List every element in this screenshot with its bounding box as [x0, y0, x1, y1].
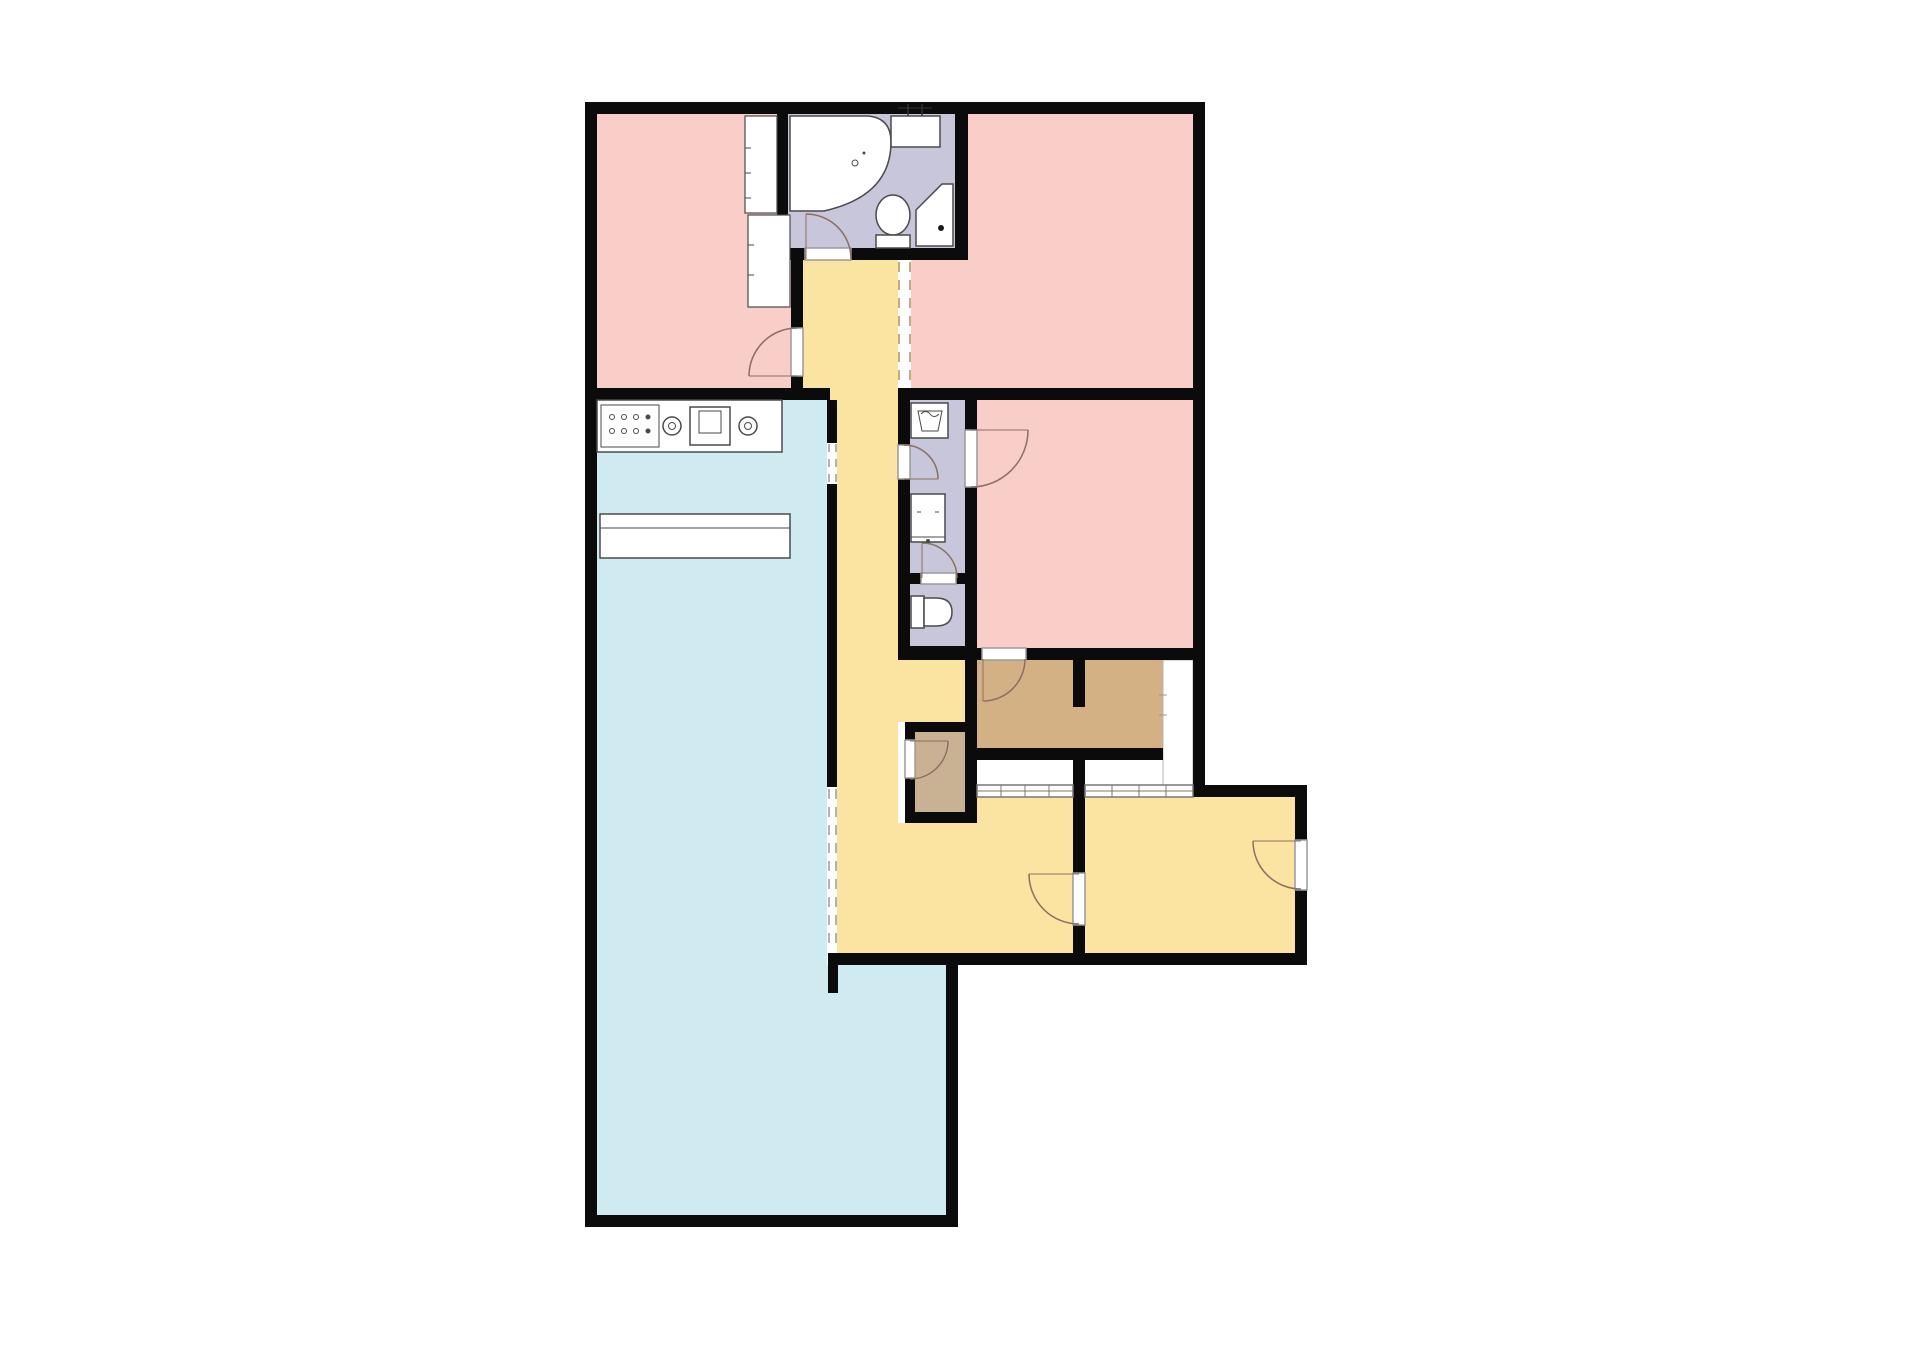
door-bar-utility: [898, 445, 910, 479]
wall-room2-right-b: [1295, 890, 1307, 965]
wall-mid-horizontal: [898, 388, 1205, 400]
washing-machine: [911, 403, 948, 438]
wall-stub-window: [1073, 760, 1085, 797]
wall-utility-left-a: [898, 399, 910, 445]
door-bar-bedroom1: [791, 328, 803, 376]
wall-outer-left: [585, 102, 597, 1227]
wall-kitchen-top: [585, 388, 830, 400]
wall-room2-top: [1193, 785, 1307, 797]
toilet-bathroom: [876, 195, 910, 235]
wall-closet-top: [905, 722, 977, 732]
bathtub-drain: [863, 152, 866, 155]
wall-stub-upper: [1073, 660, 1085, 707]
bath-sink: [891, 116, 940, 147]
wall-walkin-bottom: [965, 748, 1163, 760]
wall-wc-divider-a: [910, 573, 921, 584]
toilet-wc-tank: [911, 596, 924, 628]
windows: [977, 785, 1193, 797]
wall-outer-top: [585, 102, 1205, 114]
wardrobe-lower: [748, 215, 790, 307]
wall-closet-left-a: [905, 732, 915, 740]
wall-closet-bottom: [905, 812, 977, 823]
wall-stub-below-hall: [828, 965, 838, 993]
wall-kitchen-right-b: [827, 484, 837, 787]
toilet-wc-bowl: [924, 598, 952, 626]
floorplan-canvas: [0, 0, 1920, 1358]
cooktop-dot: [646, 429, 651, 434]
closet: [915, 732, 965, 812]
shower-drain: [938, 225, 944, 231]
door-bar-exterior: [1295, 840, 1307, 890]
hallway-top: [803, 258, 898, 400]
wall-hall-bottom: [828, 953, 1307, 965]
door-bar-walkin: [982, 648, 1026, 660]
oven: [690, 407, 730, 445]
cooktop-dot: [646, 415, 651, 420]
wall-bathroom-bottom-b: [851, 248, 968, 260]
storage-niche: [1163, 660, 1193, 787]
wall-utility-right-a: [965, 399, 977, 430]
utility-vanity: [911, 494, 945, 542]
wall-corridor-left-a: [791, 258, 803, 328]
door-bar-bedroom3: [965, 430, 977, 487]
wall-closet-left-b: [905, 778, 915, 812]
hallway-bottom: [837, 823, 1073, 953]
walk-in-closet: [977, 660, 1163, 748]
wall-room2-left-a: [1073, 797, 1085, 873]
kitchen-cooktop-panel: [601, 405, 659, 447]
wall-utility-left-b: [898, 479, 910, 646]
wall-blue-right: [946, 953, 958, 1227]
utility-vanity-knob: [926, 539, 930, 543]
wall-blue-bottom: [585, 1215, 958, 1227]
wall-room2-left-b: [1073, 925, 1085, 953]
living-room-lower: [597, 965, 946, 1215]
room-2: [1085, 797, 1295, 953]
wall-bedroom3-bottom-b: [1026, 648, 1205, 660]
kitchen-island: [600, 514, 790, 558]
toilet-bathroom-tank: [876, 235, 910, 248]
door-bar-room2: [1073, 873, 1085, 925]
bedroom-3: [977, 400, 1193, 648]
wall-kitchen-right-a: [827, 400, 837, 443]
wall-room2-right-a: [1295, 785, 1307, 840]
door-bar-closet: [905, 740, 915, 778]
hallway-right-of-closet: [977, 797, 1073, 823]
wall-bathroom-right: [955, 102, 968, 260]
door-bar-bathroom: [805, 248, 851, 260]
wall-bedroom3-bottom-a: [965, 648, 982, 660]
hallway-above-closet: [837, 660, 965, 722]
wall-outer-right: [1193, 102, 1205, 797]
door-bar-wc: [921, 573, 956, 584]
floor-plan: [0, 0, 1920, 1358]
